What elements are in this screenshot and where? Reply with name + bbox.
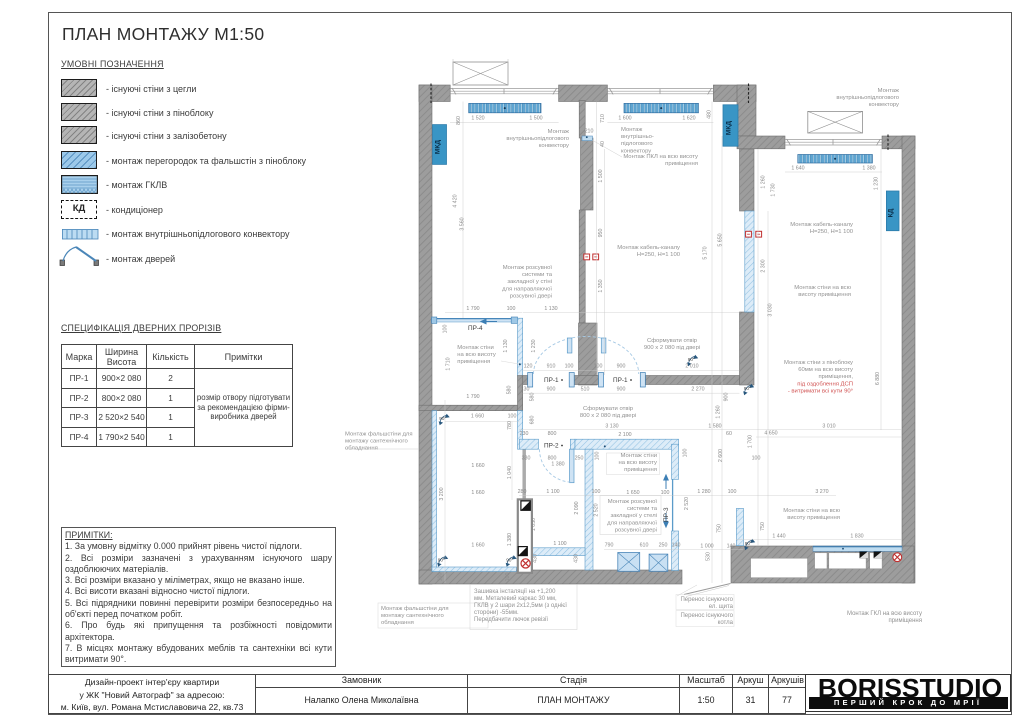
svg-text:Монтаж ПКЛ на всю висотуприміщ: Монтаж ПКЛ на всю висотуприміщення — [623, 154, 698, 167]
svg-text:610: 610 — [640, 543, 649, 549]
svg-text:3 030: 3 030 — [768, 303, 774, 316]
svg-text:Монтажвнутрішньо-підлоговогоко: Монтажвнутрішньо-підлоговогоконвектору — [621, 127, 654, 154]
svg-text:1 350: 1 350 — [598, 279, 604, 292]
svg-text:1 790: 1 790 — [466, 394, 479, 400]
svg-text:790: 790 — [605, 543, 614, 549]
svg-text:ПР-3: ПР-3 — [663, 507, 670, 522]
svg-text:100: 100 — [507, 306, 516, 312]
svg-text:1 380: 1 380 — [551, 462, 564, 468]
svg-text:Сформувати отвір800 х 2 080 пі: Сформувати отвір800 х 2 080 під двері — [580, 406, 636, 419]
svg-text:140: 140 — [727, 544, 736, 550]
svg-text:1 260: 1 260 — [716, 405, 722, 418]
svg-text:Монтаж ГКЛ на всю висотуприміщ: Монтаж ГКЛ на всю висотуприміщення — [847, 611, 922, 624]
svg-text:3 200: 3 200 — [439, 487, 445, 500]
svg-text:1 500: 1 500 — [598, 169, 604, 182]
svg-text:1 620: 1 620 — [682, 116, 695, 122]
svg-text:100: 100 — [565, 364, 574, 370]
svg-text:Перенос існуючогокотла: Перенос існуючогокотла — [680, 613, 733, 626]
svg-text:ПР-1: ПР-1 — [544, 377, 559, 384]
svg-text:Монтаж стінина всю висотуприм: Монтаж стінина всю висотуприміщення — [457, 345, 496, 365]
svg-text:210: 210 — [585, 129, 594, 135]
svg-text:910: 910 — [547, 364, 556, 370]
svg-text:780: 780 — [507, 421, 513, 430]
svg-text:Зашивка інсталяції на +1,200мм: Зашивка інсталяції на +1,200мм. Металеви… — [474, 589, 567, 623]
svg-text:100: 100 — [505, 573, 511, 582]
svg-text:1 830: 1 830 — [850, 534, 863, 540]
svg-text:Перенос існуючогоел. щита: Перенос існуючогоел. щита — [680, 597, 733, 610]
svg-text:100: 100 — [592, 489, 601, 495]
svg-text:МКД: МКД — [435, 140, 442, 155]
svg-text:Монтаж фальшстіни длямонтажу с: Монтаж фальшстіни длямонтажу сантехнічно… — [381, 606, 449, 626]
svg-text:900: 900 — [547, 387, 556, 393]
svg-text:1 660: 1 660 — [471, 490, 484, 496]
svg-text:Монтаж стіни на всювисоту прим: Монтаж стіни на всювисоту приміщення — [794, 285, 851, 298]
svg-text:750: 750 — [760, 522, 766, 531]
svg-text:580: 580 — [530, 393, 536, 402]
svg-text:280: 280 — [518, 489, 527, 495]
svg-text:100: 100 — [752, 456, 761, 462]
svg-text:100: 100 — [443, 325, 449, 334]
svg-text:1 040: 1 040 — [507, 466, 513, 479]
svg-text:2 090: 2 090 — [574, 501, 580, 514]
svg-text:90°: 90° — [688, 357, 695, 362]
svg-text:2 270: 2 270 — [691, 387, 704, 393]
svg-text:90°: 90° — [745, 541, 752, 546]
svg-text:Монтаж фальшстіни длямонтажу с: Монтаж фальшстіни длямонтажу сантехнічно… — [345, 432, 413, 452]
svg-text:480: 480 — [707, 110, 713, 119]
svg-text:МКД: МКД — [726, 121, 733, 136]
svg-text:230: 230 — [520, 431, 529, 437]
svg-text:4 650: 4 650 — [764, 431, 777, 437]
svg-text:900: 900 — [617, 387, 626, 393]
svg-text:Монтаж кабель-каналуН=250, Н=1: Монтаж кабель-каналуН=250, Н=1 100 — [790, 222, 853, 235]
svg-text:100: 100 — [595, 452, 601, 461]
svg-text:1 580: 1 580 — [708, 424, 721, 430]
svg-text:900: 900 — [724, 393, 730, 402]
svg-text:580: 580 — [507, 386, 513, 395]
svg-text:1 050: 1 050 — [531, 518, 537, 531]
svg-text:1 640: 1 640 — [791, 166, 804, 172]
svg-text:860: 860 — [456, 116, 462, 125]
svg-text:950: 950 — [598, 229, 604, 238]
svg-text:100: 100 — [594, 364, 603, 370]
svg-text:750: 750 — [717, 524, 723, 533]
svg-text:90°: 90° — [439, 416, 446, 421]
svg-text:60: 60 — [726, 431, 732, 437]
svg-text:430: 430 — [533, 554, 539, 563]
svg-text:Монтаж кабель-каналуН=250, Н=1: Монтаж кабель-каналуН=250, Н=1 100 — [617, 245, 680, 258]
svg-text:Монтаж стіни на всювисоту прим: Монтаж стіни на всювисоту приміщення — [783, 508, 840, 521]
svg-text:90°: 90° — [438, 558, 445, 563]
svg-text:100: 100 — [683, 449, 689, 458]
svg-text:2 520: 2 520 — [594, 503, 600, 516]
svg-text:2 600: 2 600 — [718, 449, 724, 462]
svg-text:680: 680 — [530, 416, 536, 425]
svg-text:1 230: 1 230 — [531, 339, 537, 352]
svg-text:2 520: 2 520 — [684, 497, 690, 510]
svg-text:1 600: 1 600 — [618, 116, 631, 122]
svg-text:1 280: 1 280 — [697, 489, 710, 495]
svg-text:2 010: 2 010 — [685, 364, 698, 370]
svg-text:430: 430 — [574, 554, 580, 563]
svg-text:100: 100 — [728, 489, 737, 495]
svg-text:3 130: 3 130 — [605, 424, 618, 430]
svg-text:Монтажвнутрішньопідлоговогокон: Монтажвнутрішньопідлоговогоконвектору — [836, 88, 899, 108]
svg-text:1 130: 1 130 — [503, 339, 509, 352]
svg-text:2 300: 2 300 — [761, 259, 767, 272]
svg-text:120: 120 — [524, 364, 533, 370]
svg-text:140: 140 — [672, 543, 681, 549]
svg-text:1 260: 1 260 — [761, 175, 767, 188]
svg-text:900: 900 — [617, 364, 626, 370]
svg-text:ПР-4: ПР-4 — [468, 325, 483, 332]
svg-text:1 660: 1 660 — [471, 414, 484, 420]
svg-text:1 660: 1 660 — [471, 543, 484, 549]
svg-text:3 270: 3 270 — [815, 489, 828, 495]
svg-text:530: 530 — [706, 552, 712, 561]
svg-text:1 440: 1 440 — [772, 534, 785, 540]
svg-text:100: 100 — [508, 414, 517, 420]
svg-text:800: 800 — [548, 431, 557, 437]
svg-text:1 130: 1 130 — [544, 306, 557, 312]
svg-text:130: 130 — [521, 387, 530, 393]
svg-text:Монтаж розсувноїсистеми тазакл: Монтаж розсувноїсистеми тазакладної у ст… — [607, 499, 658, 533]
svg-text:1 650: 1 650 — [626, 490, 639, 496]
svg-text:2 100: 2 100 — [618, 432, 631, 438]
svg-text:Монтаж стінина всю висотуприм: Монтаж стінина всю висотуприміщення — [618, 453, 657, 473]
svg-text:3 560: 3 560 — [460, 217, 466, 230]
svg-text:КД: КД — [888, 208, 895, 217]
svg-text:100: 100 — [661, 490, 670, 496]
svg-text:5 650: 5 650 — [718, 233, 724, 246]
svg-text:1 100: 1 100 — [553, 541, 566, 547]
svg-text:90°: 90° — [506, 558, 513, 563]
svg-text:5 170: 5 170 — [703, 246, 709, 259]
svg-text:90°: 90° — [744, 386, 751, 391]
svg-text:710: 710 — [600, 114, 606, 123]
svg-text:1 730: 1 730 — [771, 183, 777, 196]
svg-text:1 380: 1 380 — [507, 533, 513, 546]
svg-text:510: 510 — [581, 387, 590, 393]
svg-text:Монтаж розсувноїсистеми тазакл: Монтаж розсувноїсистеми тазакладної у ст… — [502, 265, 553, 299]
svg-text:ПР-1: ПР-1 — [613, 377, 628, 384]
svg-text:Сформувати отвір900 х 2 080 пі: Сформувати отвір900 х 2 080 під двері — [644, 338, 700, 351]
svg-text:1 230: 1 230 — [874, 177, 880, 190]
svg-text:Монтаж стіни з піноблоку60мм н: Монтаж стіни з піноблоку60мм на всю висо… — [784, 360, 853, 394]
svg-text:1 100: 1 100 — [546, 489, 559, 495]
svg-text:1 660: 1 660 — [471, 463, 484, 469]
svg-text:1 000: 1 000 — [700, 544, 713, 550]
svg-text:1 500: 1 500 — [529, 116, 542, 122]
svg-text:6 880: 6 880 — [875, 372, 881, 385]
svg-text:100: 100 — [438, 573, 444, 582]
svg-text:330: 330 — [522, 456, 531, 462]
svg-text:1 710: 1 710 — [446, 357, 452, 370]
svg-text:4 420: 4 420 — [453, 194, 459, 207]
svg-text:1 790: 1 790 — [466, 306, 479, 312]
svg-text:Монтажвнутрішньопідлоговогокон: Монтажвнутрішньопідлоговогоконвектору — [506, 129, 569, 149]
svg-text:250: 250 — [575, 456, 584, 462]
svg-text:ПР-2: ПР-2 — [544, 443, 559, 450]
svg-text:250: 250 — [659, 543, 668, 549]
svg-text:1 700: 1 700 — [748, 435, 754, 448]
svg-text:3 010: 3 010 — [822, 424, 835, 430]
svg-text:1 520: 1 520 — [471, 116, 484, 122]
svg-text:40: 40 — [600, 141, 606, 147]
svg-text:1 380: 1 380 — [862, 166, 875, 172]
